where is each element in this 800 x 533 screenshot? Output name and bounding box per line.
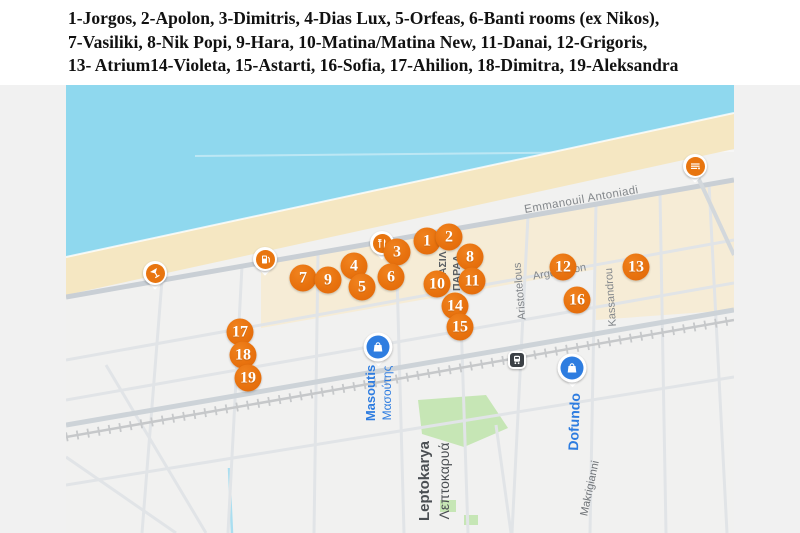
fuel-pump-icon xyxy=(260,254,271,265)
train-icon xyxy=(512,355,522,365)
map-marker-9[interactable]: 9 xyxy=(315,267,342,294)
map-marker-5[interactable]: 5 xyxy=(349,274,376,301)
map-marker-13[interactable]: 13 xyxy=(623,254,650,281)
restaurant-poi-icon[interactable] xyxy=(683,154,707,178)
map-marker-10[interactable]: 10 xyxy=(424,271,451,298)
screenshot-root: 1-Jorgos, 2-Apolon, 3-Dimitris, 4-Dias L… xyxy=(0,0,800,533)
map-marker-11[interactable]: 11 xyxy=(459,268,486,295)
bar-poi-icon[interactable] xyxy=(143,261,167,285)
train-station-icon[interactable] xyxy=(508,351,526,369)
map-marker-12[interactable]: 12 xyxy=(550,254,577,281)
place-label-masoutis-en: Masoutis xyxy=(363,365,378,421)
map-marker-15[interactable]: 15 xyxy=(447,314,474,341)
legend-line-3: 13- Atrium14-Violeta, 15-Astarti, 16-Sof… xyxy=(68,54,796,78)
legend-header: 1-Jorgos, 2-Apolon, 3-Dimitris, 4-Dias L… xyxy=(0,0,800,85)
shopping-bag-icon xyxy=(372,341,385,354)
map-marker-6[interactable]: 6 xyxy=(378,264,405,291)
fork-knife-icon xyxy=(690,161,701,172)
masoutis-supermarket-poi[interactable] xyxy=(364,333,393,362)
dofundo-store-poi[interactable] xyxy=(558,354,587,383)
shopping-bag-icon xyxy=(566,362,579,375)
map-canvas[interactable]: Emmanouil Antoniadi Argonafton Aristotel… xyxy=(66,85,734,533)
fuel-station-poi-icon[interactable] xyxy=(253,247,277,271)
place-label-masoutis-gr: Μασούτης xyxy=(380,365,394,420)
legend-line-2: 7-Vasiliki, 8-Nik Popi, 9-Hara, 10-Matin… xyxy=(68,31,796,55)
map-marker-8[interactable]: 8 xyxy=(457,244,484,271)
place-label-leptokarya-gr: Λεπτοκαρυά xyxy=(436,442,452,519)
map-marker-2[interactable]: 2 xyxy=(436,224,463,251)
place-label-leptokarya-en: Leptokarya xyxy=(416,440,433,521)
map-marker-7[interactable]: 7 xyxy=(290,265,317,292)
map-marker-19[interactable]: 19 xyxy=(235,365,262,392)
legend-line-1: 1-Jorgos, 2-Apolon, 3-Dimitris, 4-Dias L… xyxy=(68,7,796,31)
map-marker-16[interactable]: 16 xyxy=(564,287,591,314)
map-terrain: Emmanouil Antoniadi Argonafton Aristotel… xyxy=(66,85,734,533)
place-label-dofundo: Dofundo xyxy=(565,393,583,451)
cocktail-glass-icon xyxy=(150,268,161,279)
map-marker-3[interactable]: 3 xyxy=(384,239,411,266)
